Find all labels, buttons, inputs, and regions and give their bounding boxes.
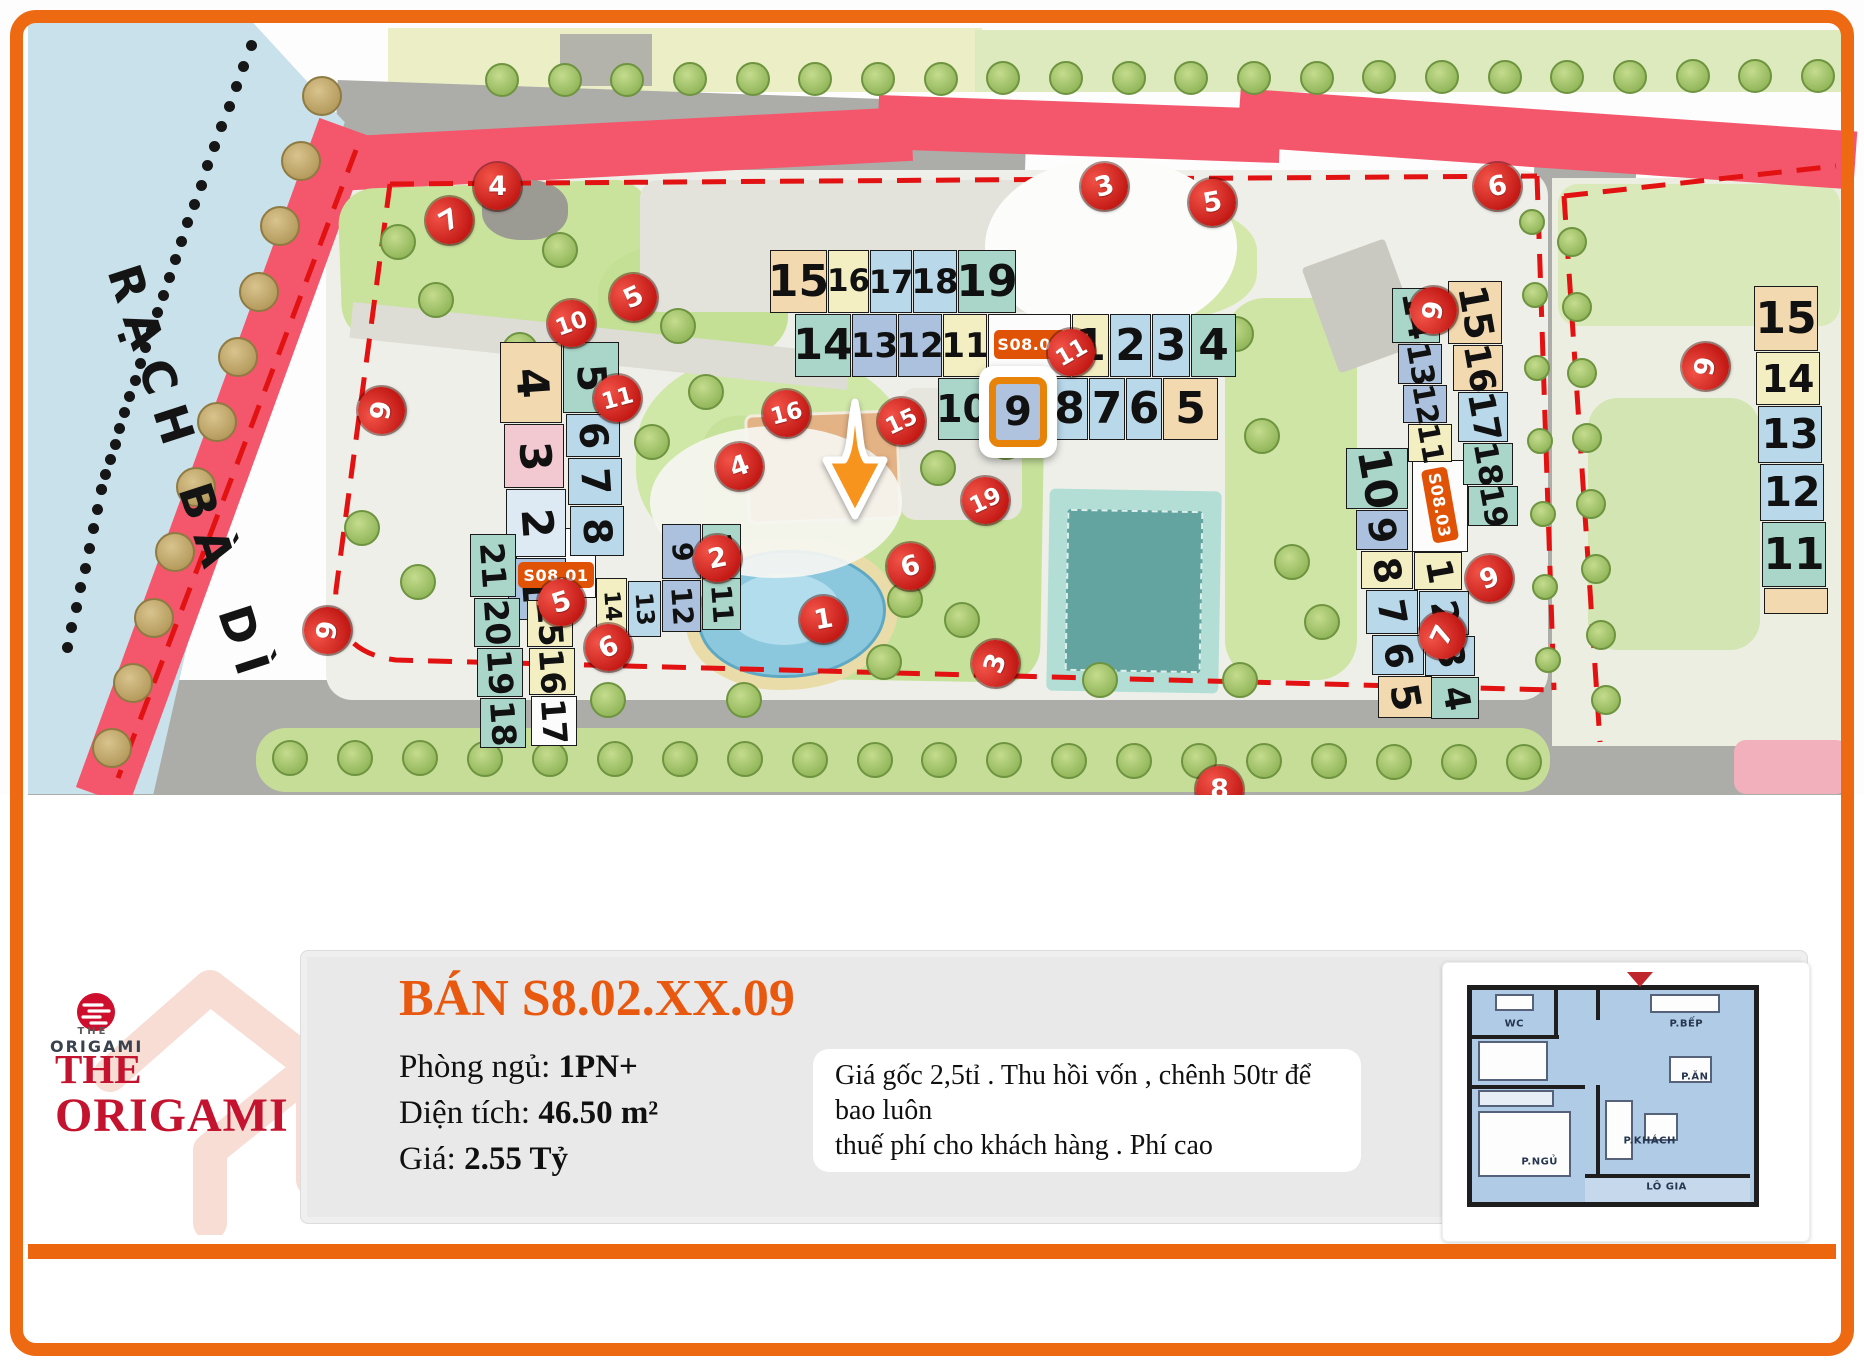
wardrobe	[1478, 1090, 1554, 1107]
bank-dot	[176, 236, 187, 247]
tree	[590, 682, 626, 718]
tree	[1222, 662, 1258, 698]
tree	[113, 663, 153, 703]
top-green-strip	[975, 30, 1844, 92]
unit-cell: 21	[470, 534, 516, 597]
tree	[610, 63, 644, 97]
tree	[1488, 60, 1522, 94]
brand-the-large: THE	[55, 1047, 289, 1091]
note-line: thuế phí cho khách hàng . Phí cao	[835, 1128, 1339, 1163]
tree	[1376, 744, 1412, 780]
area-label: Diện tích:	[399, 1095, 530, 1131]
area-value: 46.50 m²	[538, 1095, 658, 1131]
price-label: Giá:	[399, 1141, 456, 1177]
tree	[736, 62, 770, 96]
bank-dot	[246, 40, 257, 51]
bank-dot	[189, 199, 200, 210]
tree	[1591, 685, 1621, 715]
unit-cell: 10	[1346, 448, 1408, 509]
listing-flyer: RẠCH BÀ DÌ 1516171819141312111234108765S…	[0, 0, 1864, 1366]
tree	[134, 598, 174, 638]
tree	[548, 63, 582, 97]
unit-cell: 19	[958, 250, 1016, 313]
bank-dot	[196, 180, 207, 191]
tree	[1441, 744, 1477, 780]
tree	[239, 272, 279, 312]
unit-cell: 18	[480, 698, 526, 748]
right-parcel-green	[1588, 398, 1760, 650]
bank-dot	[84, 543, 95, 554]
unit-cell: 17	[870, 250, 912, 313]
tree	[1082, 662, 1118, 698]
bedrooms-value: 1PN+	[559, 1049, 638, 1085]
tree	[1557, 227, 1587, 257]
unit-cell: 19	[1468, 486, 1518, 526]
tree	[1567, 358, 1597, 388]
floorplan: WC P.BẾP P.ĂN P.KHÁCH P.NGỦ LÔ GIA	[1467, 985, 1759, 1207]
unit-cell: 11	[1762, 522, 1826, 587]
unit-cell: 13	[852, 314, 897, 377]
selected-unit: 9	[979, 366, 1057, 458]
note-box: Giá gốc 2,5tỉ . Thu hồi vốn , chênh 50tr…	[813, 1049, 1361, 1172]
room-label-wc: WC	[1505, 1018, 1524, 1029]
tree	[1613, 60, 1647, 94]
tree	[1051, 743, 1087, 779]
wc-sink	[1495, 994, 1534, 1011]
unit-cell: 8	[570, 506, 624, 556]
selected-unit-ring: 9	[989, 377, 1047, 447]
unit-cell: 14	[1756, 352, 1820, 405]
wall	[1554, 990, 1558, 1037]
tree	[1244, 418, 1280, 454]
tree	[337, 740, 373, 776]
unit-cell: 1	[1414, 552, 1462, 590]
tree	[857, 742, 893, 778]
room-label-kitchen: P.BẾP	[1670, 1018, 1704, 1029]
unit-cell: 3	[504, 424, 564, 488]
tree	[92, 728, 132, 768]
kitchen-counter	[1650, 994, 1721, 1013]
garden	[256, 728, 1550, 792]
room-label-living: P.KHÁCH	[1623, 1135, 1675, 1146]
bank-dot	[164, 272, 175, 283]
tree	[542, 232, 578, 268]
bank-dot	[88, 523, 99, 534]
unit-cell: 16	[828, 250, 869, 313]
bank-dot	[105, 454, 116, 465]
unit-cell: 13	[1398, 344, 1442, 384]
tree	[1237, 61, 1271, 95]
tree	[1572, 423, 1602, 453]
tree	[792, 742, 828, 778]
unit-cell: 6	[1372, 635, 1424, 675]
bedrooms-row: Phòng ngủ: 1PN+	[399, 1049, 638, 1086]
unit-cell: 14	[795, 314, 851, 377]
listing-title: BÁN S8.02.XX.09	[399, 969, 795, 1028]
pink-corner	[1734, 740, 1848, 794]
wall	[1472, 1035, 1559, 1039]
unit-cell: 6	[1126, 378, 1162, 440]
tree	[1550, 60, 1584, 94]
bank-dot	[62, 642, 73, 653]
unit-cell: 11	[702, 578, 741, 630]
note-line: Giá gốc 2,5tỉ . Thu hồi vốn , chênh 50tr…	[835, 1058, 1339, 1128]
tree	[1801, 59, 1835, 93]
unit-cell: 4	[1191, 314, 1236, 377]
tree	[688, 374, 724, 410]
room-label-loggia: LÔ GIA	[1646, 1182, 1687, 1193]
unit-cell: 7	[1366, 590, 1418, 634]
bank-dot	[92, 504, 103, 515]
room-label-dining: P.ĂN	[1681, 1071, 1708, 1082]
wall	[1596, 990, 1600, 1020]
unit-cell: 9	[1356, 510, 1408, 550]
bank-dot	[224, 101, 235, 112]
tree	[1174, 61, 1208, 95]
unit-cell: 17	[531, 696, 577, 746]
tree	[1300, 61, 1334, 95]
price-value: 2.55 Tỷ	[464, 1141, 568, 1177]
bedrooms-label: Phòng ngủ:	[399, 1049, 550, 1085]
entrance-marker-icon	[1627, 972, 1653, 987]
brand-origami-large: ORIGAMI	[55, 1091, 289, 1141]
unit-cell: 4	[1431, 677, 1479, 719]
price-row: Giá: 2.55 Tỷ	[399, 1141, 568, 1178]
unit-cell: 7	[1089, 378, 1125, 440]
location-arrow-icon	[800, 396, 910, 522]
unit-cell: 13	[1758, 406, 1822, 463]
tree	[861, 62, 895, 96]
room-label-bedroom: P.NGỦ	[1521, 1156, 1558, 1167]
tree	[1527, 428, 1553, 454]
unit-cell: 13	[628, 581, 661, 637]
unit-cell: 11	[943, 314, 987, 377]
tree	[726, 682, 762, 718]
tree	[380, 224, 416, 260]
brand-wordmark-large: THE ORIGAMI	[55, 1047, 289, 1141]
tree	[1274, 544, 1310, 580]
bottom-panel: THE ORIGAMI THE ORIGAMI BÁN S8.02.XX.09 …	[0, 795, 1864, 1366]
unit-cell: 7	[568, 458, 622, 505]
unit-cell: 12	[1403, 385, 1447, 423]
unit-cell: 17	[1458, 392, 1508, 442]
tree	[485, 63, 519, 97]
tree	[1530, 501, 1556, 527]
tree	[1304, 604, 1340, 640]
unit-cell	[1764, 588, 1828, 614]
tree	[272, 740, 308, 776]
tree	[1586, 620, 1616, 650]
tree	[597, 741, 633, 777]
tree	[662, 741, 698, 777]
tree	[1576, 489, 1606, 519]
unit-cell: 12	[662, 580, 701, 632]
unit-cell: 8	[1361, 551, 1413, 589]
unit-cell: 19	[477, 648, 523, 697]
unit-cell: 15	[1754, 286, 1818, 351]
map-badge: 4	[474, 163, 521, 210]
area-row: Diện tích: 46.50 m²	[399, 1095, 658, 1132]
bank-dot	[170, 254, 181, 265]
unit-cell: 2	[1110, 314, 1151, 377]
tree	[1676, 59, 1710, 93]
unit-cell: 20	[474, 598, 520, 647]
tree	[634, 424, 670, 460]
tree	[866, 644, 902, 680]
bank-dot	[231, 81, 242, 92]
tree	[924, 62, 958, 96]
bank-dot	[80, 563, 91, 574]
divider-bar	[28, 1244, 1836, 1259]
bank-dot	[238, 61, 249, 72]
tree	[1112, 61, 1146, 95]
bank-dot	[110, 439, 121, 450]
tree	[418, 282, 454, 318]
tree	[302, 76, 342, 116]
unit-cell: 15	[770, 250, 827, 313]
tree	[1425, 60, 1459, 94]
tree	[400, 564, 436, 600]
bank-dot	[71, 602, 82, 613]
tree	[1535, 647, 1561, 673]
unit-cell: 4	[500, 342, 562, 423]
tree	[532, 741, 568, 777]
tree	[727, 741, 763, 777]
tree	[660, 308, 696, 344]
single-bed	[1478, 1041, 1549, 1081]
tennis-court-inner	[1065, 509, 1204, 673]
unit-cell: 18	[1463, 443, 1513, 485]
tree	[944, 602, 980, 638]
unit-cell: 12	[898, 314, 942, 377]
tree	[1522, 282, 1548, 308]
brand-the: THE	[50, 1026, 136, 1037]
tree	[344, 510, 380, 546]
tree	[1519, 209, 1545, 235]
tree	[218, 337, 258, 377]
tree	[281, 141, 321, 181]
unit-cell: 18	[913, 250, 957, 313]
floorplan-card: WC P.BẾP P.ĂN P.KHÁCH P.NGỦ LÔ GIA	[1442, 962, 1810, 1242]
sofa	[1605, 1100, 1633, 1159]
tree	[920, 450, 956, 486]
wall	[1596, 1085, 1600, 1178]
bank-dot	[96, 484, 107, 495]
unit-cell: 11	[1408, 424, 1452, 462]
tree	[1116, 743, 1152, 779]
unit-cell: 16	[529, 648, 575, 695]
unit-cell: 3	[1152, 314, 1190, 377]
tree	[1506, 744, 1542, 780]
unit-cell: 12	[1760, 464, 1824, 521]
unit-cell: 5	[1163, 378, 1218, 440]
unit-cell: 16	[1453, 345, 1503, 391]
unit-cell: 5	[1378, 676, 1432, 718]
